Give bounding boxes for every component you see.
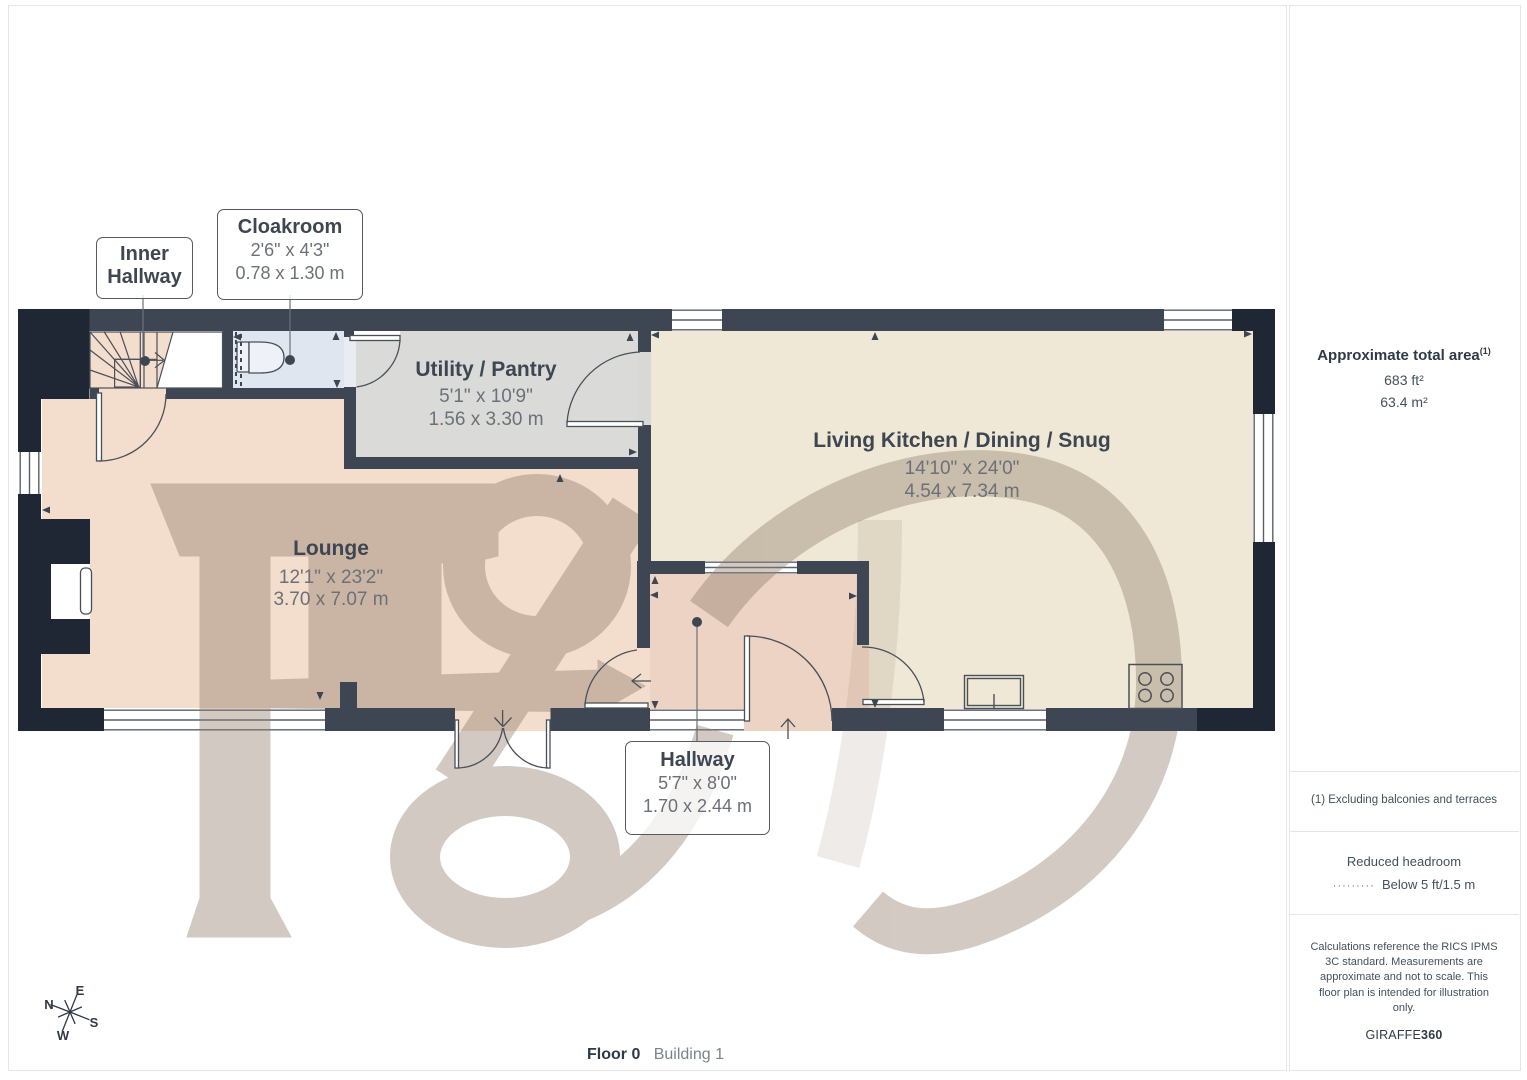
svg-text:5'1" x 10'9": 5'1" x 10'9" <box>439 386 533 407</box>
svg-text:S: S <box>90 1015 99 1030</box>
svg-text:3.70 x 7.07 m: 3.70 x 7.07 m <box>273 589 388 610</box>
svg-text:Living Kitchen / Dining / Snug: Living Kitchen / Dining / Snug <box>813 429 1111 452</box>
svg-text:14'10" x 24'0": 14'10" x 24'0" <box>905 458 1020 479</box>
svg-text:1.56 x 3.30 m: 1.56 x 3.30 m <box>428 409 543 430</box>
svg-text:W: W <box>57 1028 70 1043</box>
svg-text:N: N <box>44 997 53 1012</box>
svg-text:Lounge: Lounge <box>293 537 369 560</box>
svg-text:Utility / Pantry: Utility / Pantry <box>415 358 557 381</box>
svg-text:12'1" x 23'2": 12'1" x 23'2" <box>279 567 383 588</box>
svg-text:E: E <box>76 983 85 998</box>
svg-text:4.54 x 7.34 m: 4.54 x 7.34 m <box>904 481 1019 502</box>
